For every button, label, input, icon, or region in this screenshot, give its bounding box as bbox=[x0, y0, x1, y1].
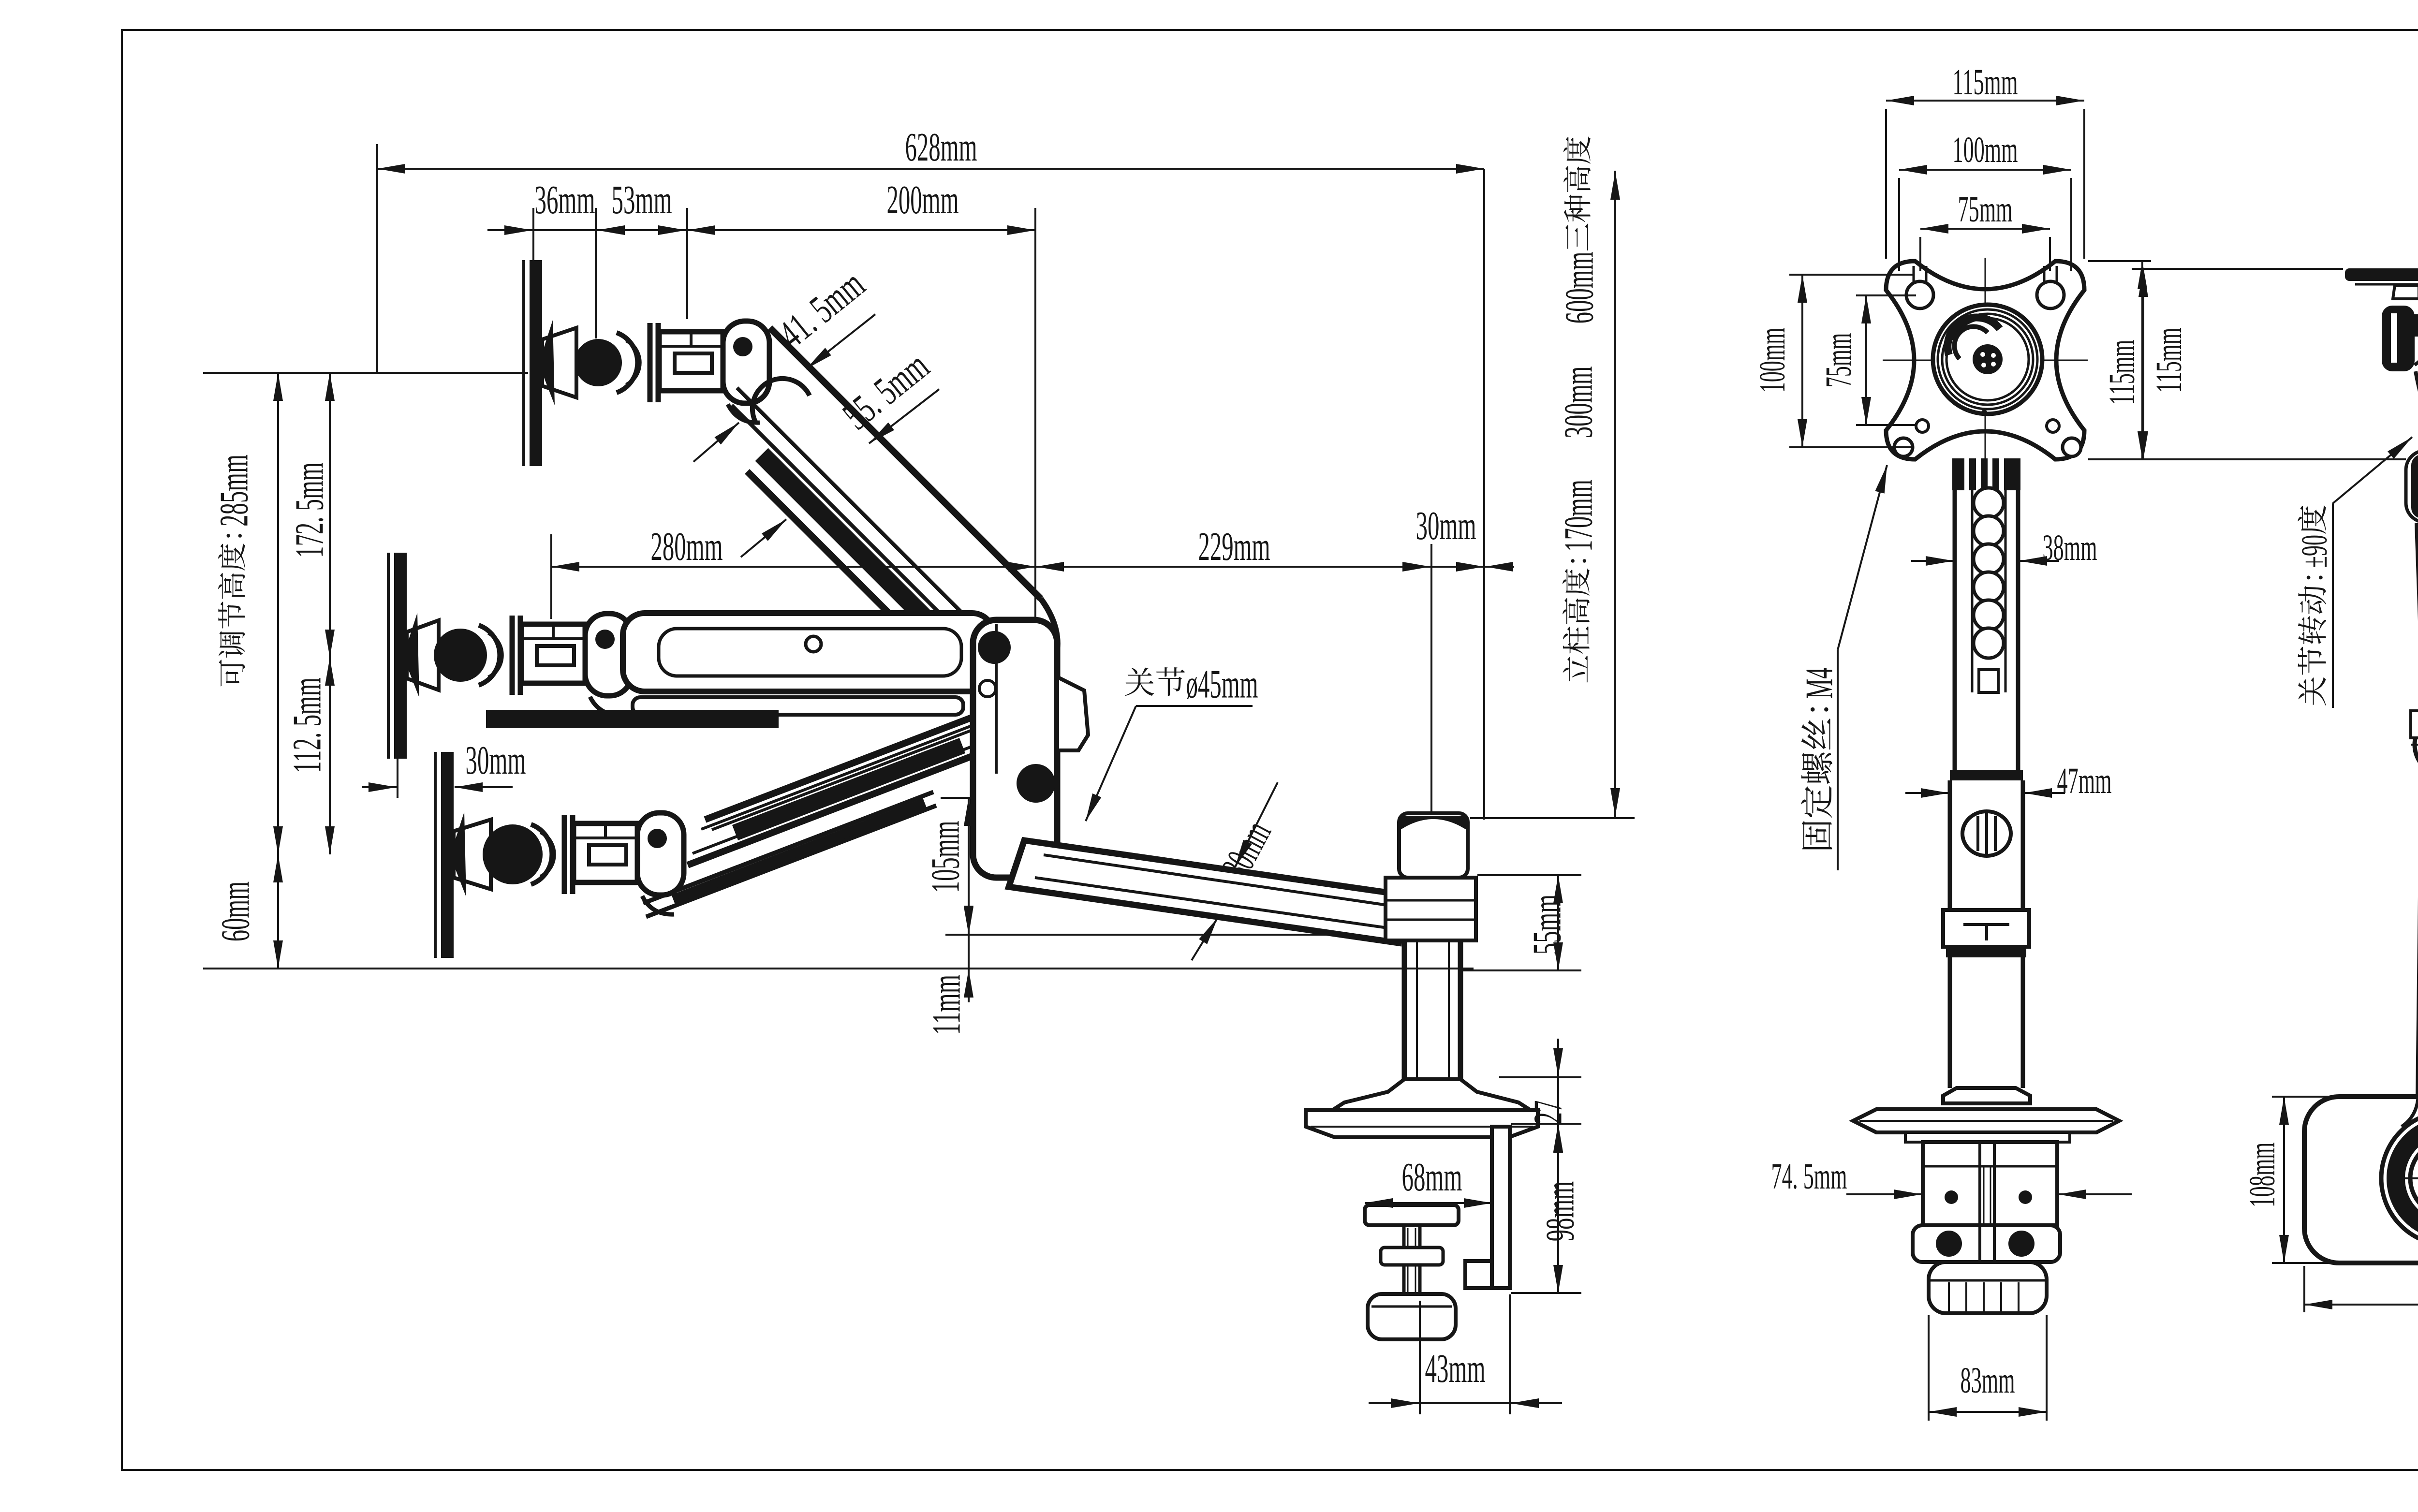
svg-text:75mm: 75mm bbox=[1958, 189, 2013, 230]
svg-text:229mm: 229mm bbox=[1198, 524, 1270, 569]
svg-text:115mm: 115mm bbox=[1953, 62, 2018, 103]
svg-text:98mm: 98mm bbox=[1538, 1181, 1583, 1242]
svg-text:60mm: 60mm bbox=[213, 881, 258, 942]
svg-text:200mm: 200mm bbox=[887, 177, 959, 222]
svg-text:115mm: 115mm bbox=[2149, 328, 2189, 393]
svg-text:11mm: 11mm bbox=[924, 975, 969, 1035]
svg-text:285mm: 285mm bbox=[212, 455, 257, 527]
svg-text:ø45mm: ø45mm bbox=[1186, 662, 1258, 707]
svg-text:M4: M4 bbox=[1798, 668, 1841, 699]
svg-text:36mm: 36mm bbox=[535, 177, 595, 222]
svg-text:53mm: 53mm bbox=[612, 177, 672, 222]
svg-text:38mm: 38mm bbox=[2043, 528, 2097, 568]
svg-text:75mm: 75mm bbox=[1818, 333, 1859, 388]
svg-text:170mm: 170mm bbox=[1556, 480, 1601, 552]
svg-text:74. 5mm: 74. 5mm bbox=[1771, 1156, 1847, 1197]
svg-text:600mm: 600mm bbox=[1557, 252, 1602, 324]
svg-text:30mm: 30mm bbox=[466, 738, 526, 783]
svg-text:100mm: 100mm bbox=[1953, 130, 2018, 170]
svg-text:±90: ±90 bbox=[2294, 535, 2335, 568]
svg-text:100mm: 100mm bbox=[1752, 328, 1793, 393]
svg-text:108mm: 108mm bbox=[2242, 1143, 2283, 1208]
svg-text:30mm: 30mm bbox=[1416, 503, 1476, 548]
svg-text:43mm: 43mm bbox=[1425, 1346, 1486, 1391]
svg-text:55. 5mm: 55. 5mm bbox=[835, 343, 937, 439]
svg-text:628mm: 628mm bbox=[905, 125, 977, 170]
svg-text:68mm: 68mm bbox=[1402, 1155, 1462, 1200]
svg-text:112. 5mm: 112. 5mm bbox=[285, 677, 330, 773]
svg-text:55mm: 55mm bbox=[1525, 895, 1570, 955]
svg-text:115mm: 115mm bbox=[2102, 340, 2142, 405]
svg-text:27: 27 bbox=[1526, 1101, 1571, 1124]
svg-text:105mm: 105mm bbox=[923, 821, 968, 893]
svg-text:83mm: 83mm bbox=[1961, 1360, 2015, 1401]
svg-text:280mm: 280mm bbox=[651, 524, 723, 569]
svg-text:300mm: 300mm bbox=[1556, 367, 1601, 439]
svg-text:47mm: 47mm bbox=[2057, 761, 2112, 801]
svg-text:172. 5mm: 172. 5mm bbox=[287, 462, 332, 558]
